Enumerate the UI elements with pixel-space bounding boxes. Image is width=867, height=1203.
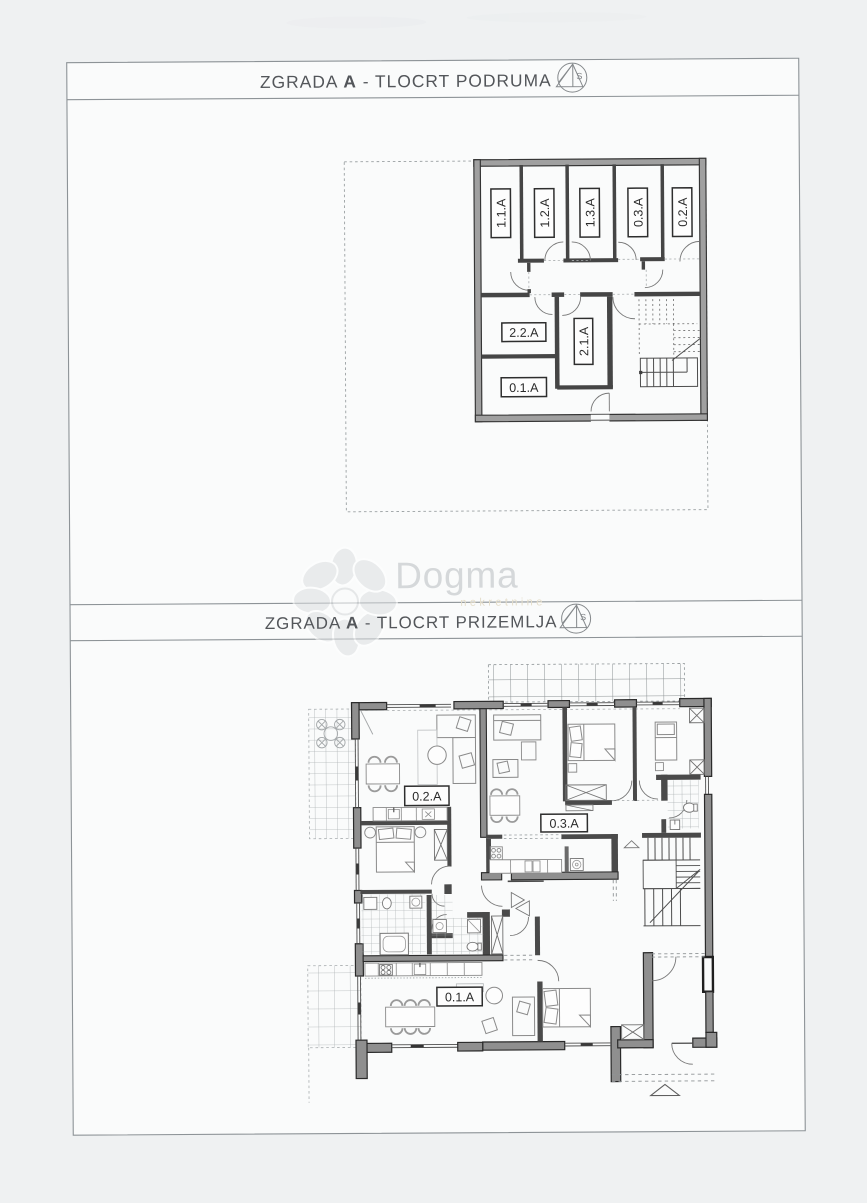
svg-text:0.1.A: 0.1.A [445,990,475,1004]
svg-text:ZGRADA A - TLOCRT PODRUMA: ZGRADA A - TLOCRT PODRUMA [260,70,552,92]
svg-text:0.3.A: 0.3.A [631,197,645,227]
svg-text:Dogma: Dogma [395,554,519,596]
svg-text:1.3.A: 1.3.A [583,197,597,227]
svg-text:ZGRADA A - TLOCRT PRIZEMLJA: ZGRADA A - TLOCRT PRIZEMLJA [265,612,558,633]
svg-text:2.2.A: 2.2.A [509,326,539,340]
svg-text:S: S [576,71,582,81]
svg-text:2.1.A: 2.1.A [577,326,591,356]
svg-text:0.1.A: 0.1.A [509,381,539,395]
svg-text:S: S [580,612,586,622]
svg-text:nekretnine: nekretnine [460,596,545,609]
svg-text:0.3.A: 0.3.A [549,817,579,831]
svg-text:0.2.A: 0.2.A [412,789,442,803]
svg-text:1.2.A: 1.2.A [538,198,552,228]
svg-text:0.2.A: 0.2.A [676,197,690,227]
svg-text:1.1.A: 1.1.A [494,198,508,228]
